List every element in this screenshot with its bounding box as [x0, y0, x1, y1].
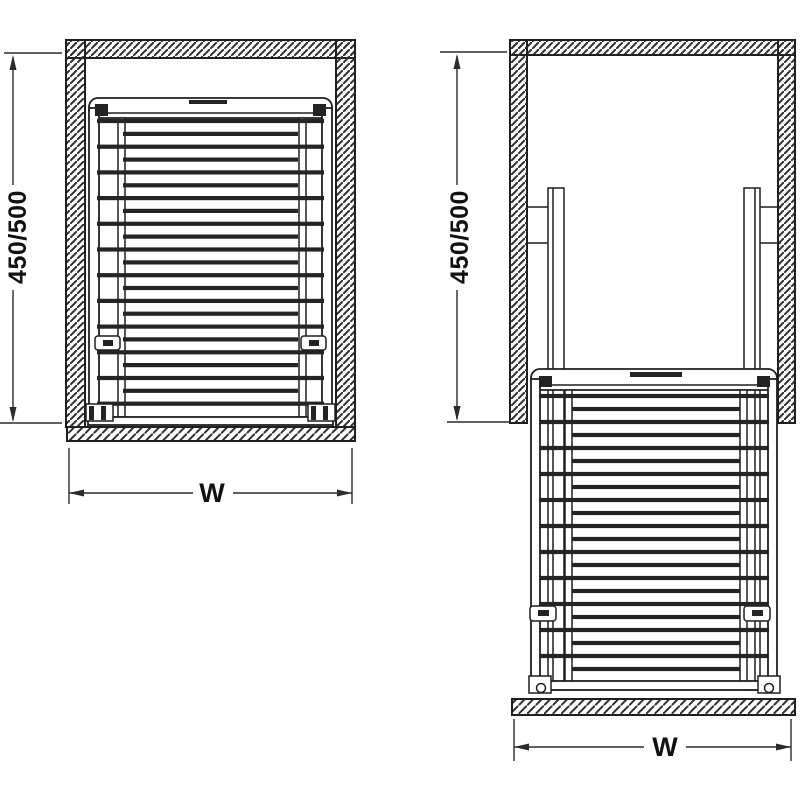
foot-left: [529, 676, 551, 693]
width-dimension-label: W: [199, 478, 225, 508]
basket-bottom-rail: [548, 681, 760, 690]
basket-right-tube: [768, 379, 777, 683]
basket-right-tube: [322, 108, 332, 417]
clamp-right: [744, 606, 770, 621]
basket-slat: [97, 196, 324, 200]
cabinet-top-panel: [510, 40, 795, 55]
rail-end-cap-left: [95, 104, 108, 116]
height-dimension-label: 450/500: [446, 190, 474, 284]
basket-slat: [572, 433, 740, 437]
front-view: 450/500 W: [0, 40, 355, 508]
basket-slats: [97, 119, 324, 406]
basket-slat: [97, 145, 324, 149]
basket-slat: [539, 498, 769, 502]
basket-slat: [97, 350, 324, 354]
basket-inner-bar-right: [299, 118, 306, 417]
arrow-right: [776, 744, 791, 751]
arrow-right: [337, 490, 352, 497]
basket-slat: [123, 312, 298, 316]
extended-view: 450/500 W: [440, 40, 795, 762]
clamp-left: [95, 336, 120, 350]
basket-inner-bar-right: [740, 390, 747, 682]
basket-slat: [539, 576, 769, 580]
basket-slat: [539, 524, 769, 528]
cabinet-right-wall: [778, 40, 795, 423]
cabinet-bottom-panel: [67, 427, 355, 441]
basket-slat: [539, 394, 769, 398]
arrow-up: [454, 54, 461, 69]
foot-right: [758, 676, 780, 693]
height-dimension-extended: 450/500: [440, 52, 509, 422]
basket-inner-bar-left: [118, 118, 125, 417]
basket-slat: [123, 337, 298, 341]
basket-slat: [572, 537, 740, 541]
basket-slats: [539, 394, 769, 671]
basket-slat: [539, 654, 769, 658]
basket-slat: [539, 602, 769, 606]
basket-slat: [123, 209, 298, 213]
drawing-canvas: 450/500 W: [0, 0, 800, 800]
rail-center-mark: [189, 100, 227, 104]
rail-end-cap-right: [757, 376, 770, 387]
basket-slat: [572, 485, 740, 489]
basket-slat: [123, 260, 298, 264]
height-dimension-front: 450/500: [0, 53, 62, 423]
basket-slat: [572, 459, 740, 463]
basket-slat: [97, 325, 324, 329]
clamp-left: [530, 606, 556, 621]
basket-slat: [539, 550, 769, 554]
basket-slat: [97, 170, 324, 174]
basket-slat: [572, 511, 740, 515]
basket-bottom-rail: [88, 417, 333, 425]
basket-slat: [539, 420, 769, 424]
cabinet-left-wall: [66, 40, 85, 427]
rail-end-cap-left: [539, 376, 552, 387]
width-dimension-extended: W: [514, 719, 791, 762]
clamp-right: [301, 336, 326, 350]
cabinet-left-wall: [510, 40, 527, 423]
arrow-left: [69, 490, 84, 497]
arrow-down: [454, 406, 461, 421]
basket-slat: [572, 407, 740, 411]
basket-slat: [539, 472, 769, 476]
basket-slat: [97, 299, 324, 303]
arrow-left: [514, 744, 529, 751]
basket-slat: [97, 273, 324, 277]
basket-slat: [123, 235, 298, 239]
arrow-up: [10, 55, 17, 70]
basket-slat: [123, 132, 298, 136]
width-dimension-front: W: [69, 448, 352, 508]
basket-slat: [572, 589, 740, 593]
basket-left-tube: [531, 379, 540, 683]
pullout-base-plate: [512, 699, 795, 715]
basket-slat: [123, 363, 298, 367]
width-dimension-label: W: [652, 732, 678, 762]
basket-slat: [97, 119, 324, 123]
basket-slat: [123, 389, 298, 393]
basket-slat: [572, 667, 740, 671]
foot-left: [86, 404, 113, 421]
basket-slat: [97, 376, 324, 380]
basket-front: [86, 98, 335, 425]
basket-inner-bar-left: [565, 390, 572, 682]
rail-center-mark: [630, 372, 682, 377]
height-dimension-label: 450/500: [4, 190, 32, 284]
foot-right: [308, 404, 335, 421]
wall-bracket-left: [527, 207, 548, 243]
basket-slat: [123, 158, 298, 162]
basket-slat: [123, 286, 298, 290]
arrow-down: [10, 407, 17, 422]
basket-slat: [539, 446, 769, 450]
basket-slat: [97, 247, 324, 251]
cabinet-top-panel: [66, 40, 355, 58]
basket-slat: [123, 183, 298, 187]
basket-slat: [572, 615, 740, 619]
basket-slat: [572, 563, 740, 567]
cabinet-right-wall: [336, 40, 355, 427]
basket-slat: [97, 222, 324, 226]
basket-slat: [97, 402, 324, 406]
rail-end-cap-right: [313, 104, 326, 116]
pullout-basket-technical-diagram: 450/500 W: [0, 0, 800, 800]
basket-slat: [539, 628, 769, 632]
basket-left-tube: [89, 108, 99, 417]
basket-slat: [572, 641, 740, 645]
